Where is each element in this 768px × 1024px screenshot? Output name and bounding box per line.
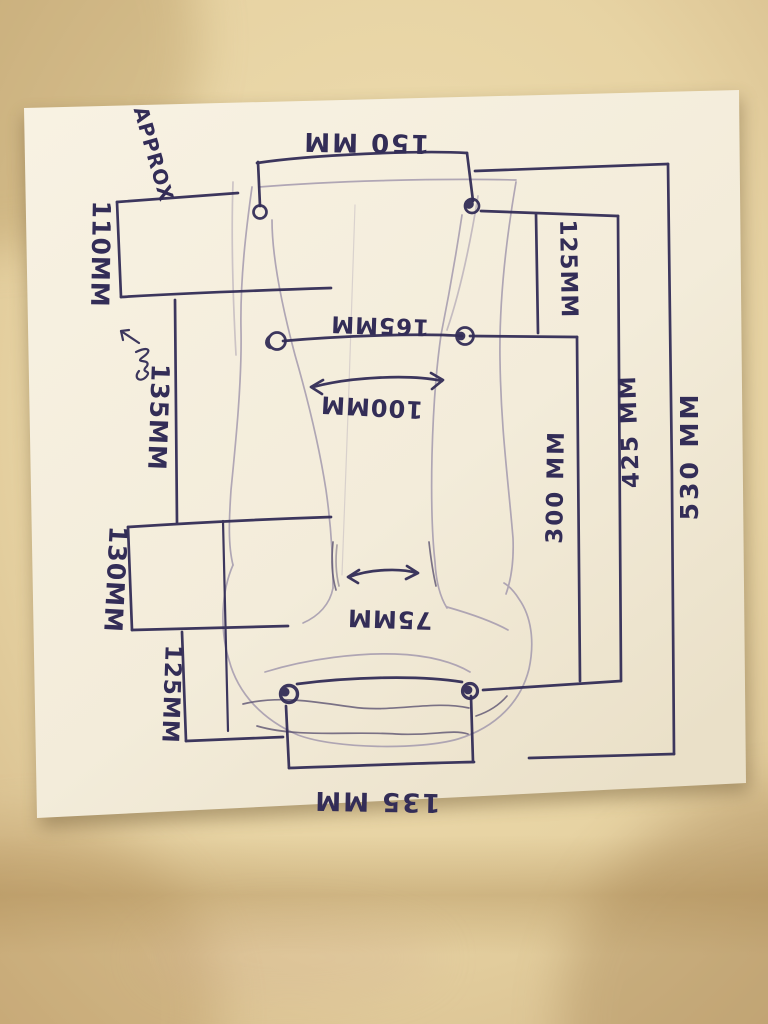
dim-left-lower-label: 130MM <box>98 525 133 633</box>
dim-425-label: 425 MM <box>615 374 645 489</box>
photo-of-hand-drawn-sketch: APPROX 150 MM 110MM 125MM 165MM 100MM 13… <box>0 0 768 1024</box>
dim-upper-left-label: 110MM <box>85 200 116 307</box>
dim-hole-span-label: 165MM <box>330 310 430 339</box>
dim-bottom-width-label: 135 MM <box>313 785 441 817</box>
dim-upper-right-label: 125MM <box>554 219 582 318</box>
dim-530-label: 530 MM <box>675 392 704 521</box>
dim-300-label: 300 MM <box>542 430 570 544</box>
dim-left-bottom-label: 125MM <box>156 644 185 744</box>
dim-lower-inner-width-label: 75MM <box>347 604 433 635</box>
sketch-photo-canvas: APPROX 150 MM 110MM 125MM 165MM 100MM 13… <box>0 0 768 1024</box>
dim-top-width-label: 150 MM <box>302 126 430 158</box>
dim-inner-width-label: 100MM <box>319 390 423 423</box>
wall-smudge <box>140 916 440 1000</box>
dim-left-mid-label: 135MM <box>142 363 175 471</box>
